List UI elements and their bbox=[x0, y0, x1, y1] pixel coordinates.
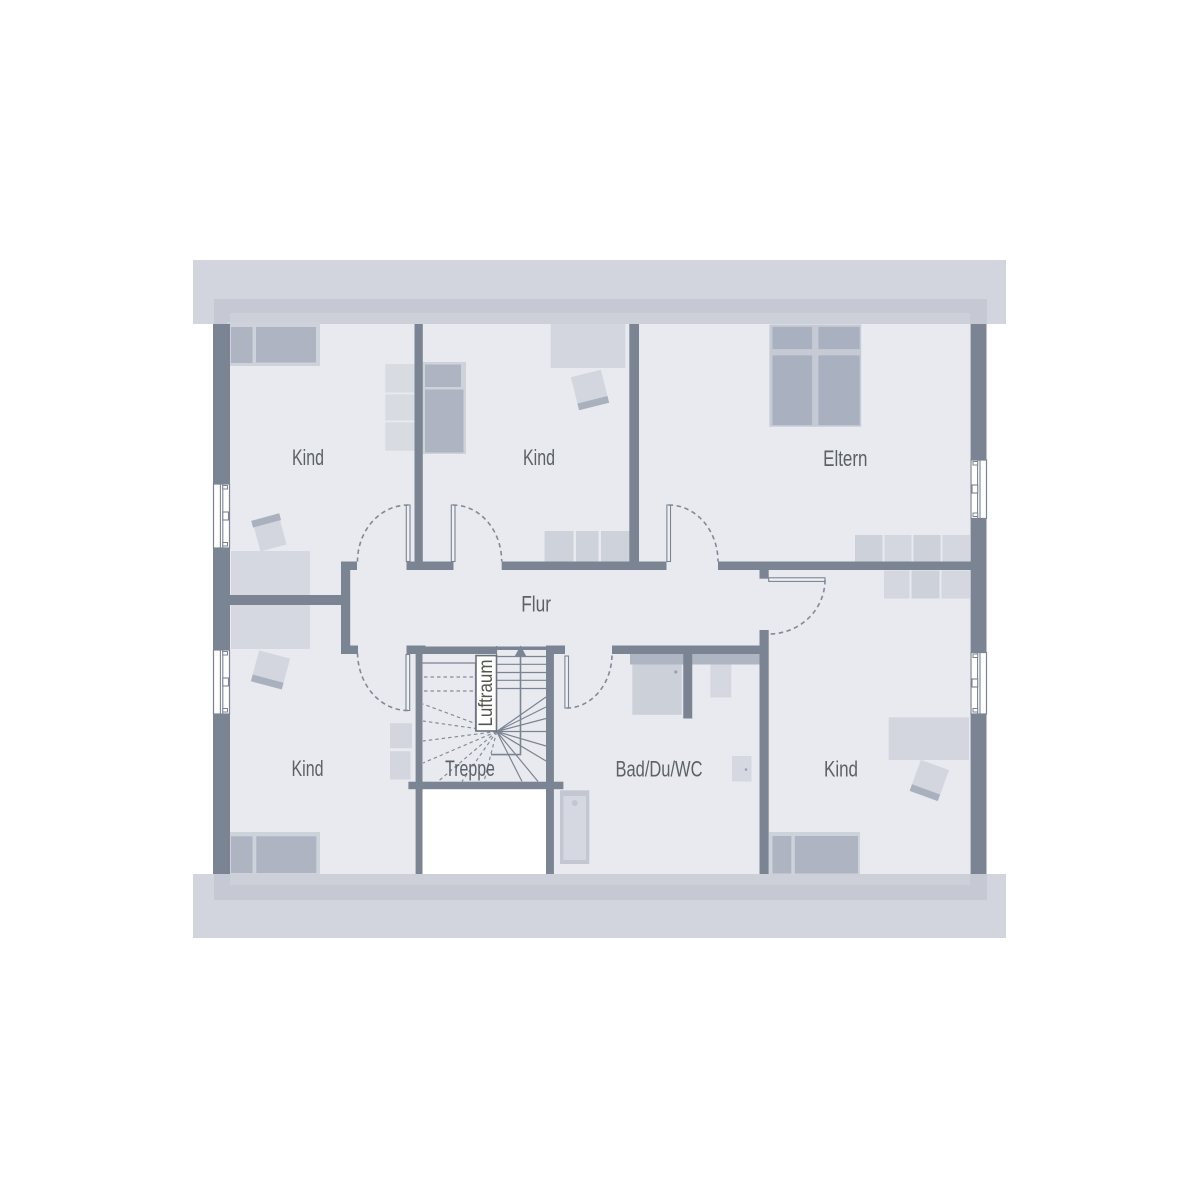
svg-text:Kind: Kind bbox=[292, 445, 324, 470]
svg-text:Luftraum: Luftraum bbox=[476, 660, 497, 727]
svg-text:Eltern: Eltern bbox=[823, 446, 867, 471]
svg-text:Kind: Kind bbox=[523, 445, 555, 470]
svg-text:Kind: Kind bbox=[292, 756, 324, 781]
svg-text:Kind: Kind bbox=[824, 757, 858, 782]
svg-text:Flur: Flur bbox=[521, 592, 551, 617]
svg-text:Treppe: Treppe bbox=[445, 756, 495, 781]
svg-text:Bad/Du/WC: Bad/Du/WC bbox=[616, 757, 703, 782]
